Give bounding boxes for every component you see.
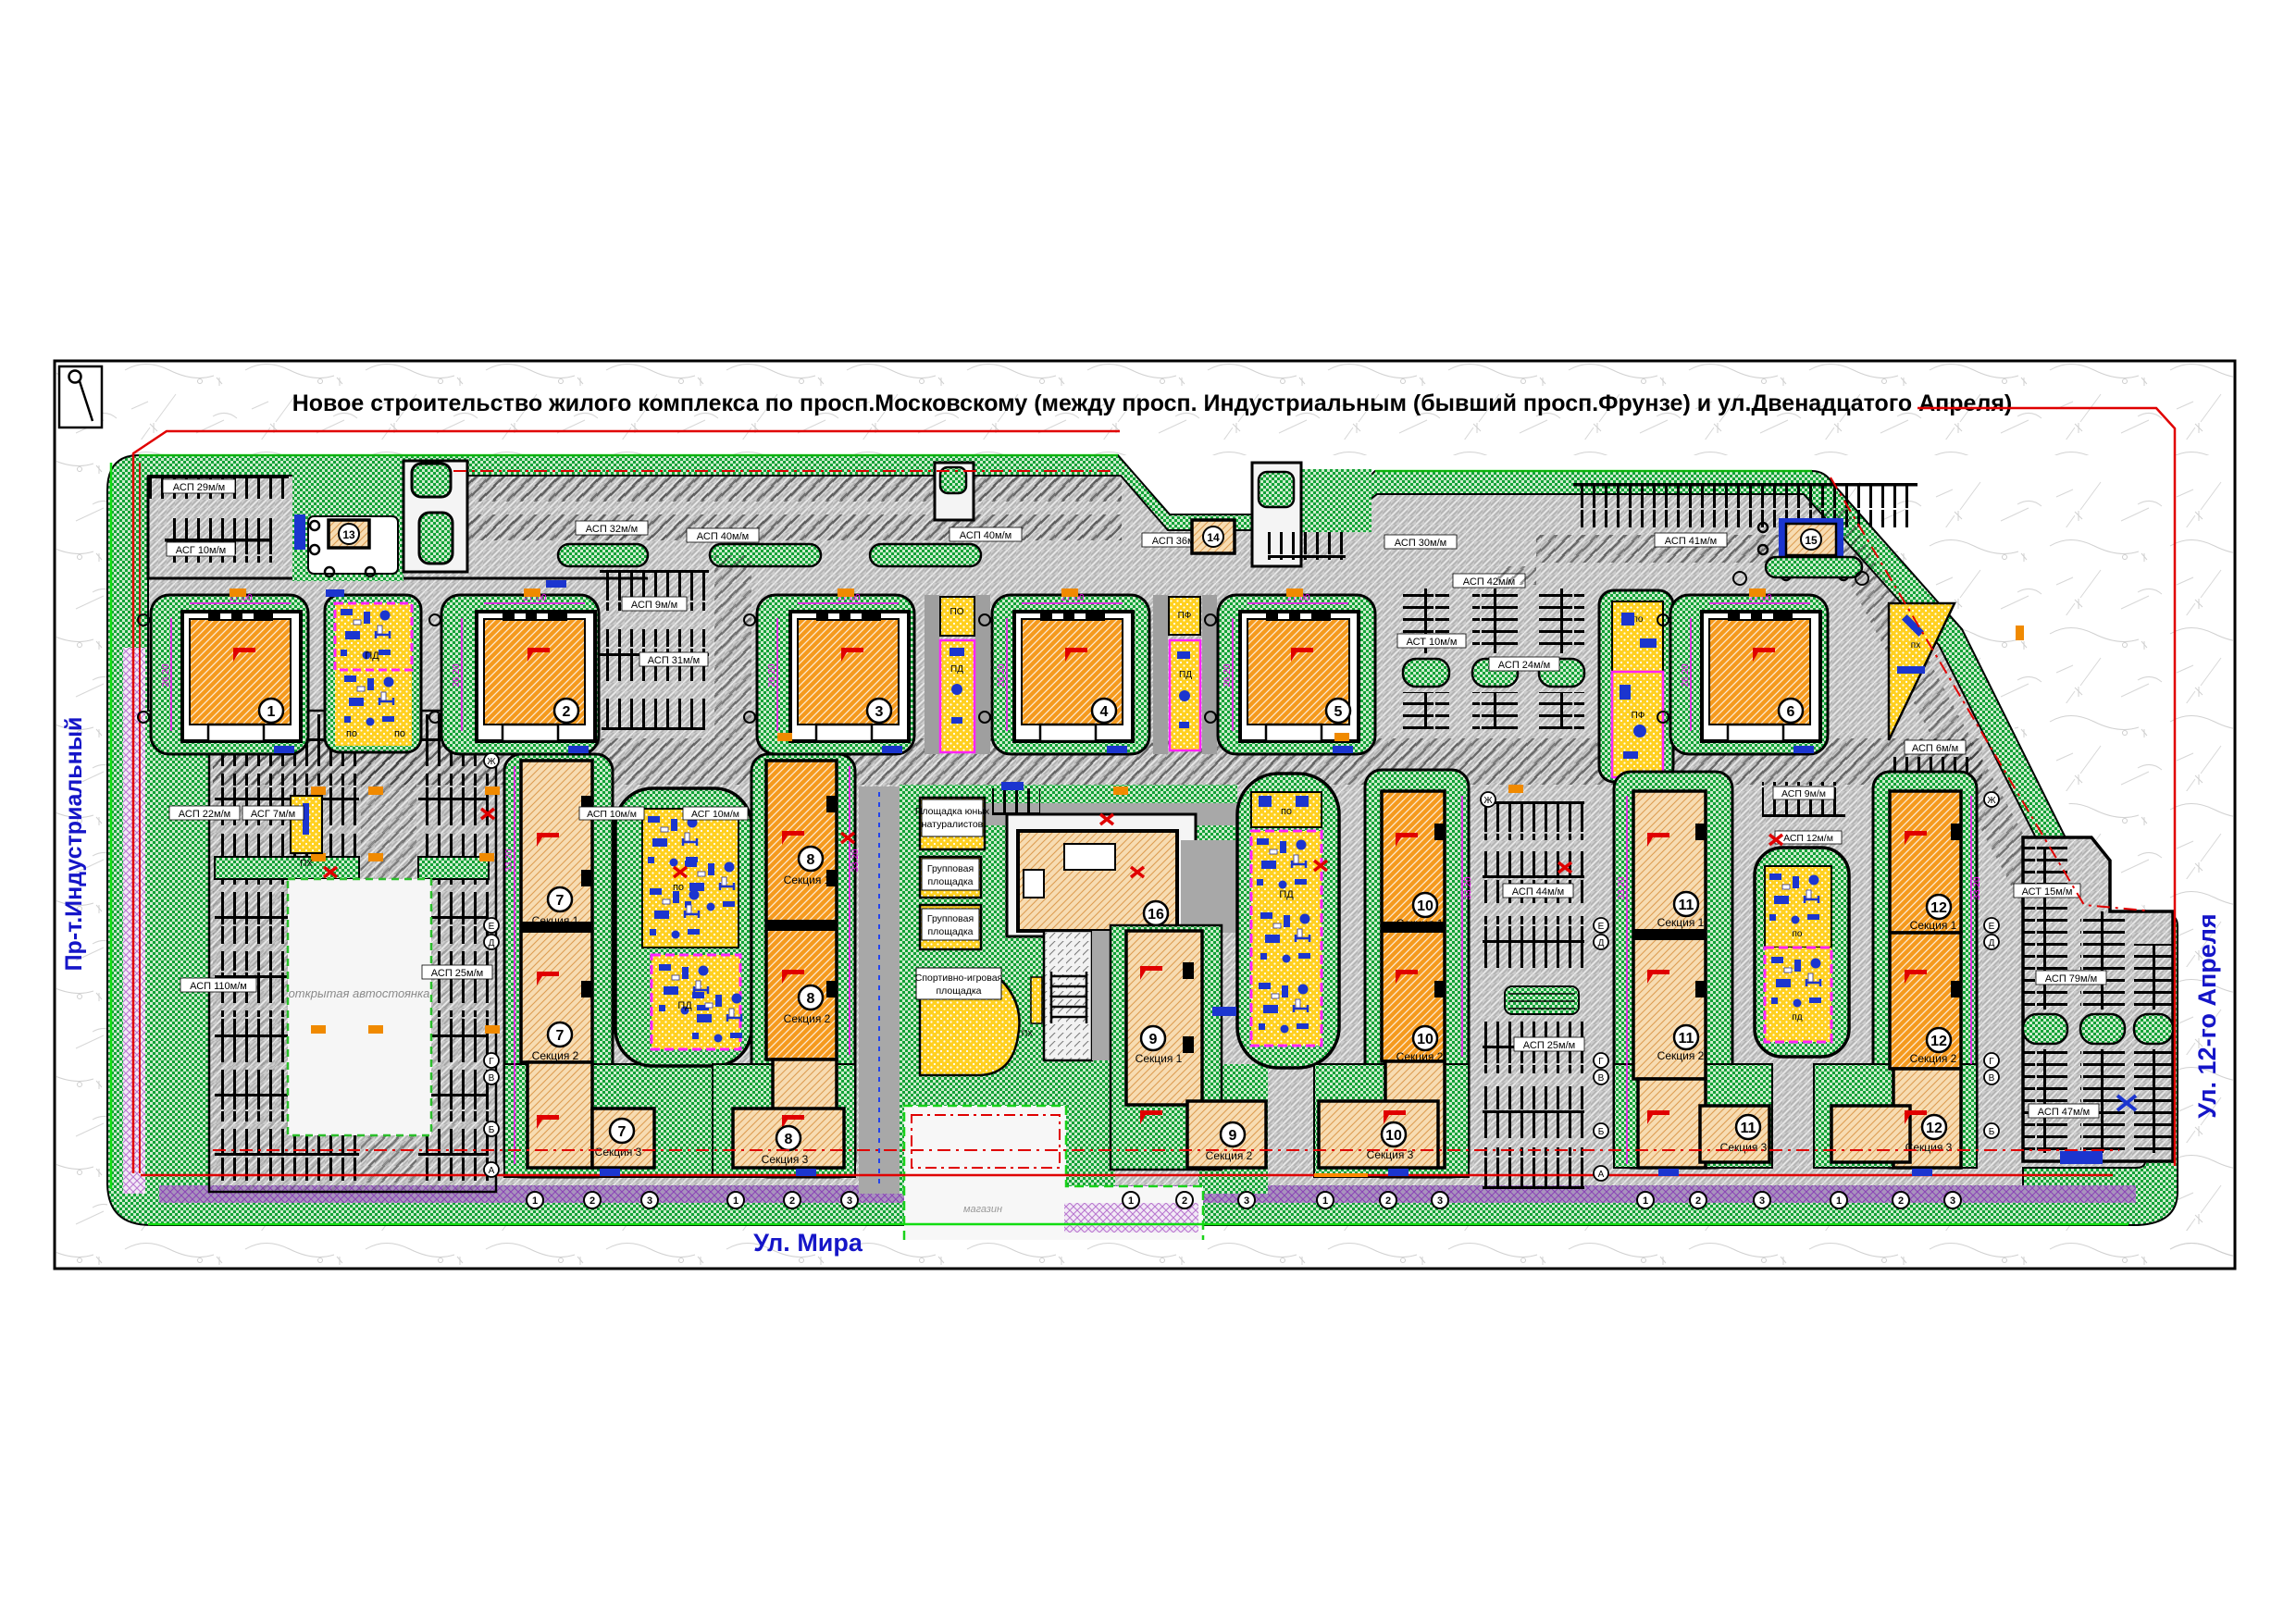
svg-text:пх: пх	[1911, 640, 1920, 650]
svg-text:Б: Б	[1598, 1127, 1605, 1137]
svg-text:Площадка юных: Площадка юных	[915, 806, 990, 817]
svg-text:12: 12	[1930, 1034, 1947, 1049]
svg-text:33.20: 33.20	[1463, 876, 1473, 899]
svg-text:АСП 32м/м: АСП 32м/м	[586, 524, 638, 535]
svg-text:ПД: ПД	[677, 1000, 692, 1011]
svg-text:13: 13	[342, 528, 355, 541]
svg-text:26.20: 26.20	[452, 663, 462, 687]
svg-text:Б: Б	[489, 1125, 495, 1135]
svg-text:Секция 1: Секция 1	[1396, 917, 1444, 930]
svg-text:АСП 9м/м: АСП 9м/м	[631, 600, 677, 611]
svg-text:АСП 31м/м: АСП 31м/м	[648, 655, 700, 666]
svg-text:Ж: Ж	[1987, 796, 1996, 806]
svg-text:Е: Е	[1598, 922, 1605, 932]
svg-text:открытая автостоянка: открытая автостоянка	[289, 986, 430, 1000]
svg-text:26.20: 26.20	[161, 663, 171, 687]
svg-text:ПО: ПО	[950, 607, 964, 617]
svg-text:33.20: 33.20	[1617, 876, 1627, 899]
svg-text:ПФ: ПФ	[1632, 711, 1645, 721]
svg-text:1: 1	[1322, 1196, 1328, 1207]
svg-text:А: А	[489, 1166, 495, 1176]
svg-text:2: 2	[1182, 1196, 1187, 1207]
svg-text:26.20: 26.20	[767, 663, 777, 687]
svg-text:ПД: ПД	[1179, 670, 1192, 680]
svg-text:2: 2	[789, 1196, 795, 1207]
svg-text:1: 1	[1643, 1196, 1648, 1207]
svg-text:ПФ: ПФ	[1178, 611, 1192, 621]
svg-text:9: 9	[1229, 1128, 1237, 1144]
svg-text:3: 3	[1759, 1196, 1765, 1207]
svg-text:10: 10	[1417, 1032, 1433, 1047]
svg-text:АСП 25м/м: АСП 25м/м	[1523, 1040, 1575, 1051]
svg-text:Групповая: Групповая	[927, 863, 974, 874]
svg-text:АСП 6м/м: АСП 6м/м	[1912, 743, 1958, 754]
svg-text:11: 11	[1741, 1121, 1756, 1136]
svg-text:7: 7	[618, 1124, 627, 1140]
svg-text:Секция 2: Секция 2	[1206, 1149, 1253, 1162]
svg-text:Новое строительство жилого ком: Новое строительство жилого комплекса по …	[292, 390, 2013, 416]
svg-text:ПД: ПД	[365, 650, 379, 662]
svg-text:Секция 3: Секция 3	[595, 1146, 642, 1158]
svg-text:1: 1	[733, 1196, 738, 1207]
svg-text:1: 1	[1836, 1196, 1842, 1207]
svg-text:8: 8	[807, 852, 815, 868]
svg-text:пд: пд	[1792, 1012, 1802, 1022]
svg-text:АСП 30м/м: АСП 30м/м	[1395, 538, 1446, 549]
svg-text:АСП 9м/м: АСП 9м/м	[1781, 788, 1826, 799]
svg-text:АСП 110м/м: АСП 110м/м	[190, 981, 247, 992]
svg-text:АСП 40м/м: АСП 40м/м	[697, 531, 749, 542]
svg-text:по: по	[673, 882, 684, 893]
svg-text:Пр-т.Индустриальный: Пр-т.Индустриальный	[61, 717, 87, 972]
svg-text:Секция 2: Секция 2	[1657, 1049, 1705, 1062]
svg-text:Ж: Ж	[487, 757, 496, 767]
svg-text:Спортивно-игровая: Спортивно-игровая	[915, 973, 1002, 984]
svg-text:Секция 1: Секция 1	[784, 873, 831, 886]
svg-text:Секция 1: Секция 1	[1136, 1052, 1183, 1065]
svg-text:11: 11	[1679, 1031, 1694, 1047]
svg-text:АСП 44м/м: АСП 44м/м	[1512, 886, 1564, 898]
svg-text:ПХ: ПХ	[1022, 1029, 1033, 1038]
svg-text:7: 7	[556, 1028, 565, 1044]
svg-text:А: А	[1598, 1170, 1605, 1180]
svg-text:Секция 2: Секция 2	[532, 1049, 579, 1062]
svg-text:Д: Д	[1989, 938, 1995, 948]
svg-text:5: 5	[1334, 704, 1343, 720]
svg-text:Ул. 12-го Апреля: Ул. 12-го Апреля	[2193, 913, 2221, 1118]
svg-text:АСП 12м/м: АСП 12м/м	[1783, 833, 1833, 844]
svg-text:площадка: площадка	[927, 926, 973, 937]
svg-text:3: 3	[875, 704, 884, 720]
svg-text:по: по	[346, 728, 357, 739]
svg-text:7: 7	[556, 893, 565, 909]
svg-text:Групповая: Групповая	[927, 913, 974, 924]
svg-text:15: 15	[1805, 534, 1818, 547]
svg-text:26.20: 26.20	[1222, 663, 1233, 687]
svg-text:натуралистов: натуралистов	[922, 819, 984, 830]
svg-text:2: 2	[590, 1196, 595, 1207]
svg-text:16: 16	[1148, 907, 1164, 923]
svg-text:Секция 2: Секция 2	[1396, 1050, 1444, 1063]
svg-text:по: по	[394, 728, 405, 739]
svg-text:Д: Д	[489, 938, 495, 948]
svg-text:14: 14	[1207, 531, 1220, 544]
svg-text:АСГ 7м/м: АСГ 7м/м	[251, 809, 295, 820]
svg-text:8: 8	[807, 991, 815, 1007]
svg-text:Б: Б	[1989, 1127, 1995, 1137]
svg-text:1: 1	[532, 1196, 538, 1207]
svg-text:1: 1	[267, 704, 276, 720]
svg-text:33.20: 33.20	[1972, 876, 1982, 899]
svg-text:АСП 79м/м: АСП 79м/м	[2045, 973, 2097, 985]
svg-text:26.20: 26.20	[997, 663, 1007, 687]
svg-text:Секция 3: Секция 3	[1905, 1141, 1953, 1154]
svg-text:2: 2	[1385, 1196, 1391, 1207]
svg-text:АСП 29м/м: АСП 29м/м	[173, 482, 225, 493]
svg-text:4: 4	[1100, 704, 1109, 720]
svg-text:Г: Г	[1989, 1057, 1994, 1067]
svg-text:2: 2	[563, 704, 571, 720]
svg-text:Секция 1: Секция 1	[1910, 919, 1957, 932]
svg-text:9: 9	[1149, 1032, 1158, 1047]
svg-text:АСГ 10м/м: АСГ 10м/м	[176, 545, 226, 556]
svg-text:10: 10	[1417, 898, 1433, 914]
svg-text:В: В	[489, 1073, 495, 1084]
svg-text:по: по	[1281, 806, 1292, 817]
svg-text:2: 2	[1695, 1196, 1701, 1207]
svg-text:3: 3	[647, 1196, 652, 1207]
svg-text:АСП 40м/м: АСП 40м/м	[960, 530, 1011, 541]
svg-text:АСТ 10м/м: АСТ 10м/м	[1407, 637, 1458, 648]
svg-text:2: 2	[1898, 1196, 1904, 1207]
svg-text:3: 3	[1244, 1196, 1249, 1207]
svg-text:Секция 1: Секция 1	[532, 914, 579, 927]
svg-text:АСП 10м/м: АСП 10м/м	[587, 809, 637, 820]
svg-text:Секция 1: Секция 1	[1657, 916, 1705, 929]
svg-text:33.20: 33.20	[504, 849, 515, 872]
svg-text:ПХ: ПХ	[300, 859, 313, 869]
svg-text:АСП 41м/м: АСП 41м/м	[1665, 536, 1717, 547]
svg-text:Г: Г	[489, 1057, 494, 1067]
svg-text:1: 1	[1128, 1196, 1134, 1207]
svg-text:В: В	[1989, 1073, 1995, 1084]
svg-text:Е: Е	[1989, 922, 1995, 932]
svg-text:10: 10	[1385, 1128, 1402, 1144]
svg-text:Е: Е	[489, 922, 495, 932]
svg-text:по: по	[1793, 929, 1803, 939]
svg-text:АСТ 15м/м: АСТ 15м/м	[2022, 886, 2073, 898]
svg-text:26.20: 26.20	[1681, 663, 1691, 687]
svg-text:АСП 25м/м: АСП 25м/м	[431, 968, 483, 979]
svg-text:Секция 3: Секция 3	[762, 1153, 809, 1166]
svg-text:12: 12	[1926, 1121, 1942, 1136]
svg-text:Ж: Ж	[1483, 796, 1493, 806]
svg-text:8: 8	[785, 1132, 793, 1147]
svg-text:АСП 47м/м: АСП 47м/м	[2038, 1107, 2090, 1118]
svg-text:магазин: магазин	[963, 1204, 1002, 1215]
svg-text:Секция 2: Секция 2	[784, 1012, 831, 1025]
svg-text:6: 6	[1787, 704, 1795, 720]
svg-text:В: В	[1598, 1073, 1605, 1084]
svg-text:Секция 3: Секция 3	[1720, 1141, 1768, 1154]
svg-text:Д: Д	[1598, 938, 1605, 948]
svg-text:по: по	[1633, 614, 1644, 625]
svg-text:Ул. Мира: Ул. Мира	[753, 1229, 863, 1257]
svg-text:ПД: ПД	[1279, 889, 1294, 900]
svg-text:3: 3	[1437, 1196, 1443, 1207]
svg-text:АСП 24м/м: АСП 24м/м	[1498, 660, 1550, 671]
svg-text:АСГ 10м/м: АСГ 10м/м	[691, 809, 739, 820]
svg-text:3: 3	[847, 1196, 852, 1207]
svg-text:площадка: площадка	[936, 985, 981, 997]
svg-text:Секция 2: Секция 2	[1910, 1052, 1957, 1065]
svg-text:Г: Г	[1598, 1057, 1604, 1067]
svg-text:площадка: площадка	[927, 876, 973, 887]
svg-text:3: 3	[1950, 1196, 1955, 1207]
svg-text:АСП 22м/м: АСП 22м/м	[179, 809, 230, 820]
svg-text:12: 12	[1930, 900, 1947, 916]
svg-text:11: 11	[1679, 898, 1694, 913]
svg-text:ПД: ПД	[950, 664, 963, 675]
